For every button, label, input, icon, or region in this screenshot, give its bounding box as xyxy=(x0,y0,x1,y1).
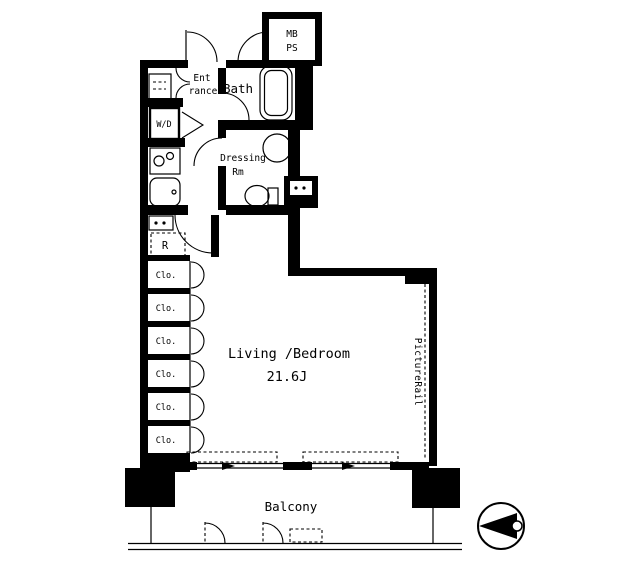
floor-plan-drawing: MB PS Ent rance Bath Dressing Rm xyxy=(0,0,640,569)
counter-dot-1 xyxy=(154,221,157,224)
closet-separator-5 xyxy=(148,387,190,393)
wall-corridor-right-b xyxy=(218,120,226,138)
curtain-box-left xyxy=(187,452,277,462)
meter-box-pipe-space: MB PS xyxy=(238,12,322,66)
bathroom: Bath xyxy=(222,66,292,120)
balcony-label: Balcony xyxy=(265,499,318,514)
shaft-dot-2 xyxy=(302,186,305,189)
balcony: Balcony xyxy=(128,499,462,550)
curtain-box-right xyxy=(303,452,398,462)
kitchen-column: W/D R xyxy=(149,108,213,256)
closet-label-1: Clo. xyxy=(156,271,176,281)
wall-living-top xyxy=(288,268,437,276)
closet-separator-4 xyxy=(148,354,190,360)
genkan-door-arc-top xyxy=(176,68,190,82)
living-door-arc xyxy=(175,215,213,253)
toilet-bowl xyxy=(245,186,269,207)
partition-arc-1 xyxy=(205,523,225,543)
closet-separator-3 xyxy=(148,321,190,327)
closet-label-5: Clo. xyxy=(156,403,176,413)
evacuation-hatch xyxy=(290,529,322,542)
entrance-label-line1: Ent xyxy=(193,73,210,84)
washer-dryer-label: W/D xyxy=(156,120,171,130)
wall-corridor-right-c xyxy=(218,166,226,210)
bath-door-arc xyxy=(222,93,249,120)
closet-label-6: Clo. xyxy=(156,436,176,446)
stove-burner-1 xyxy=(154,156,164,166)
bathtub-inner xyxy=(265,71,288,116)
wall-left xyxy=(140,60,148,472)
compass-hub xyxy=(512,521,522,531)
wall-window-seg-mid xyxy=(283,462,312,470)
entrance-label-line2: rance xyxy=(189,86,218,97)
stove-burner-2 xyxy=(167,153,174,160)
picture-rail-label: PictureRail xyxy=(412,338,423,406)
entrance-hall: Ent rance xyxy=(149,68,218,100)
closet-label-3: Clo. xyxy=(156,337,176,347)
counter-dot-2 xyxy=(162,221,165,224)
entrance-door xyxy=(186,30,217,62)
dressing-label-line2: Rm xyxy=(232,167,244,178)
north-compass-icon xyxy=(478,503,524,549)
closet-door-6 xyxy=(191,427,204,453)
partition-arc-2 xyxy=(263,523,283,543)
wall-bath-outer-right xyxy=(295,60,313,128)
mbps-label-line1: MB xyxy=(286,29,298,40)
closet-door-3 xyxy=(191,328,204,354)
wd-door-fold xyxy=(182,112,203,138)
closet-door-5 xyxy=(191,394,204,420)
wall-right xyxy=(429,268,437,466)
living-size-label: 21.6J xyxy=(267,369,308,385)
entrance-door-arc xyxy=(187,32,217,62)
wall-door-stub xyxy=(211,215,219,257)
washbasin xyxy=(263,134,291,162)
balcony-pillar-left xyxy=(125,468,175,507)
shaft-face xyxy=(290,181,312,195)
balcony-pillar-right xyxy=(412,468,460,508)
shaft-dot-1 xyxy=(294,186,297,189)
counter-box xyxy=(149,216,173,230)
dressing-label-line1: Dressing xyxy=(220,153,266,164)
closet-label-4: Clo. xyxy=(156,370,176,380)
closet-separator-2 xyxy=(148,288,190,294)
closet-door-1 xyxy=(191,262,204,288)
mbps-label-line2: PS xyxy=(286,43,298,54)
closet-separator-6 xyxy=(148,420,190,426)
closet-label-2: Clo. xyxy=(156,304,176,314)
closet-door-4 xyxy=(191,361,204,387)
living-bedroom: Living /Bedroom 21.6J PictureRail xyxy=(187,284,425,462)
floor-plan-page: MB PS Ent rance Bath Dressing Rm xyxy=(0,0,640,569)
shoe-cabinet xyxy=(149,74,171,100)
closet-door-2 xyxy=(191,295,204,321)
living-label: Living /Bedroom xyxy=(228,346,350,362)
wall-genkan-bottom xyxy=(140,98,183,107)
dressing-door-arc xyxy=(194,138,222,166)
refrigerator-label: R xyxy=(162,240,169,252)
sink-drain xyxy=(172,190,176,194)
